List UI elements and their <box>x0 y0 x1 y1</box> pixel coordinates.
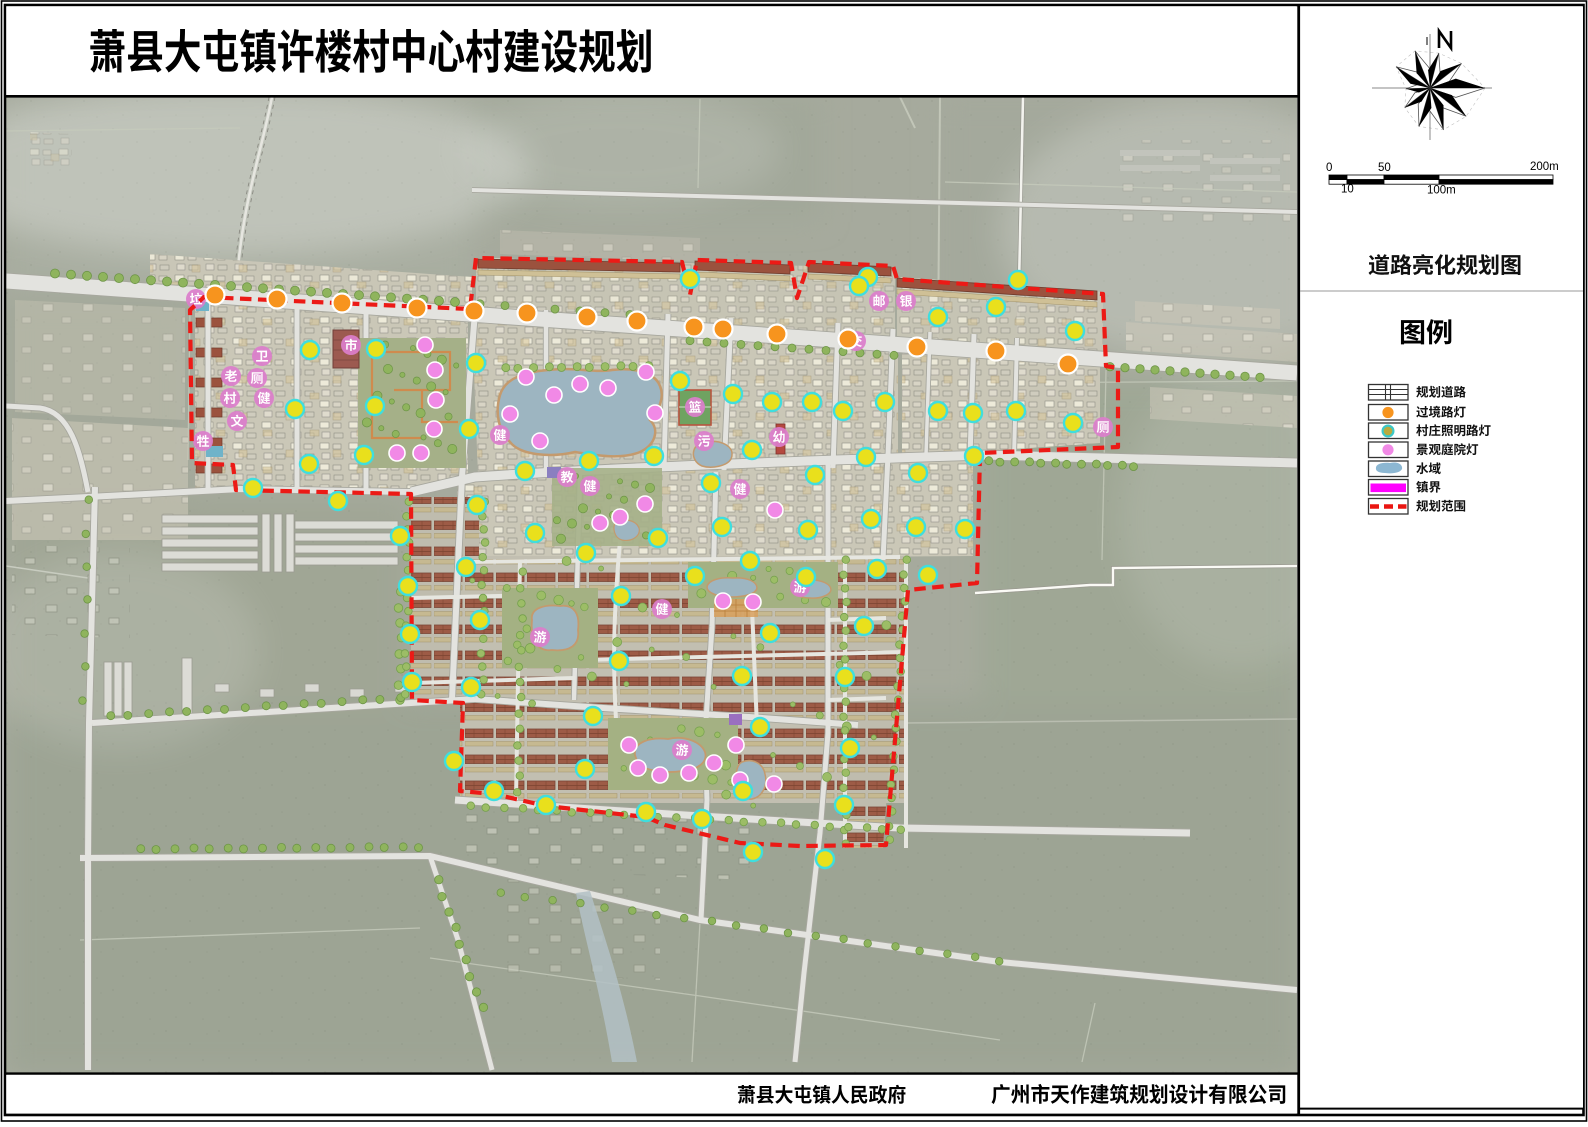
svg-text:100m: 100m <box>1427 185 1456 197</box>
svg-text:50: 50 <box>1378 162 1391 174</box>
svg-text:200m: 200m <box>1530 161 1559 173</box>
svg-text:0: 0 <box>1326 162 1332 174</box>
svg-text:10: 10 <box>1341 184 1354 196</box>
